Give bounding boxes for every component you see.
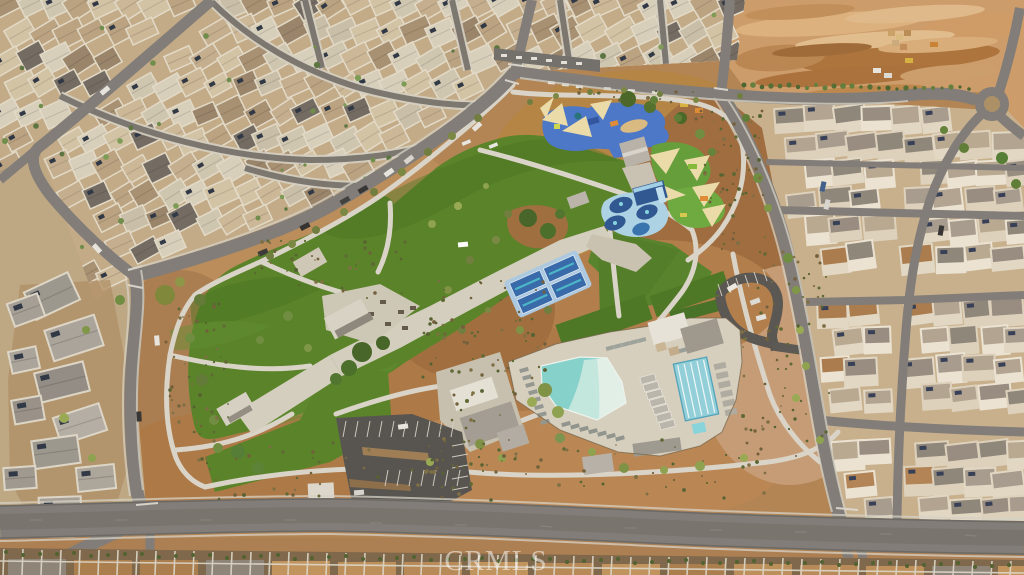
svg-text:CRMLS: CRMLS: [444, 545, 547, 575]
